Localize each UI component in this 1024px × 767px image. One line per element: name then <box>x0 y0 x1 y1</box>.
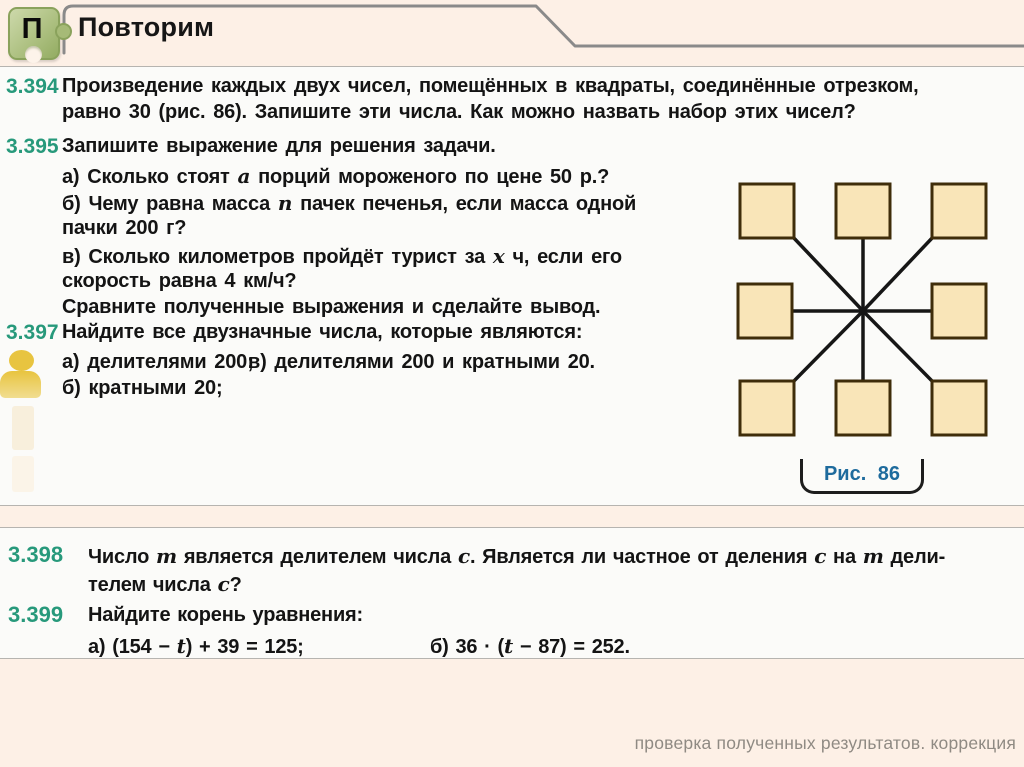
square-bottom-right <box>932 381 986 435</box>
square-top-right <box>932 184 986 238</box>
problem-395-item-v: в) Сколько километров пройдёт турист за … <box>62 244 622 269</box>
problem-397-item-a: а) делителями 200; <box>62 351 254 374</box>
math-var: c <box>218 572 230 596</box>
square-middle-right <box>932 284 986 338</box>
problem-398-line2: телем числа c? <box>88 572 242 597</box>
problem-398-line1: Число m является делителем числа c. Явля… <box>88 544 945 569</box>
math-var: t <box>504 634 513 658</box>
math-var: m <box>863 544 884 568</box>
problems-panel-bottom: 3.398 Число m является делителем числа c… <box>0 527 1024 659</box>
problem-395-intro: Запишите выражение для решения задачи. <box>62 135 496 158</box>
problem-399-eq-b: б) 36 · (t − 87) = 252. <box>430 634 630 659</box>
puzzle-knob <box>55 23 72 40</box>
square-bottom-left <box>740 381 794 435</box>
figure-86-diagram <box>730 175 1024 505</box>
puzzle-icon: П <box>8 5 72 65</box>
problem-395-item-b-cont: пачки 200 г? <box>62 217 186 240</box>
problem-number-397: 3.397 <box>6 321 59 345</box>
problem-397-item-v: в) делителями 200 и кратными 20. <box>248 351 595 374</box>
connection-segments <box>792 236 934 383</box>
problem-394-line1: Произведение каждых двух чисел, помещённ… <box>62 75 918 98</box>
person-icon <box>0 350 46 530</box>
problem-394-line2: равно 30 (рис. 86). Запишите эти числа. … <box>62 101 856 124</box>
math-var: m <box>156 544 177 568</box>
math-var: t <box>177 634 186 658</box>
math-var: a <box>238 164 251 188</box>
problem-399-eq-a: а) (154 − t) + 39 = 125; <box>88 634 304 659</box>
person-body <box>0 371 41 398</box>
square-middle-left <box>738 284 792 338</box>
math-var: c <box>814 544 826 568</box>
problem-number-394: 3.394 <box>6 75 59 99</box>
person-head <box>9 350 34 371</box>
faded-marker-icon <box>12 456 34 492</box>
square-top-center <box>836 184 890 238</box>
figure-caption: Рис. 86 <box>800 459 924 494</box>
square-bottom-center <box>836 381 890 435</box>
square-top-left <box>740 184 794 238</box>
problem-number-399: 3.399 <box>8 602 63 628</box>
problem-399-intro: Найдите корень уравнения: <box>88 604 363 627</box>
figure-86: Рис. 86 <box>730 175 1024 505</box>
problem-number-395: 3.395 <box>6 135 59 159</box>
problem-395-conclusion: Сравните полученные выражения и сделайте… <box>62 296 600 319</box>
math-var: c <box>458 544 470 568</box>
problem-number-398: 3.398 <box>8 542 63 568</box>
problem-397-item-b: б) кратными 20; <box>62 377 222 400</box>
math-var: n <box>278 191 292 215</box>
page-title: Повторим <box>78 12 214 43</box>
faded-marker-icon <box>12 406 34 450</box>
problem-395-item-b: б) Чему равна масса n пачек печенья, есл… <box>62 191 636 216</box>
puzzle-letter: П <box>8 7 56 51</box>
math-var: x <box>493 244 505 268</box>
footer-note: проверка полученных результатов. коррекц… <box>0 733 1016 754</box>
problem-395-item-v-cont: скорость равна 4 км/ч? <box>62 270 296 293</box>
problem-397-intro: Найдите все двузначные числа, которые яв… <box>62 321 582 344</box>
problem-395-item-a: а) Сколько стоят a порций мороженого по … <box>62 164 609 189</box>
